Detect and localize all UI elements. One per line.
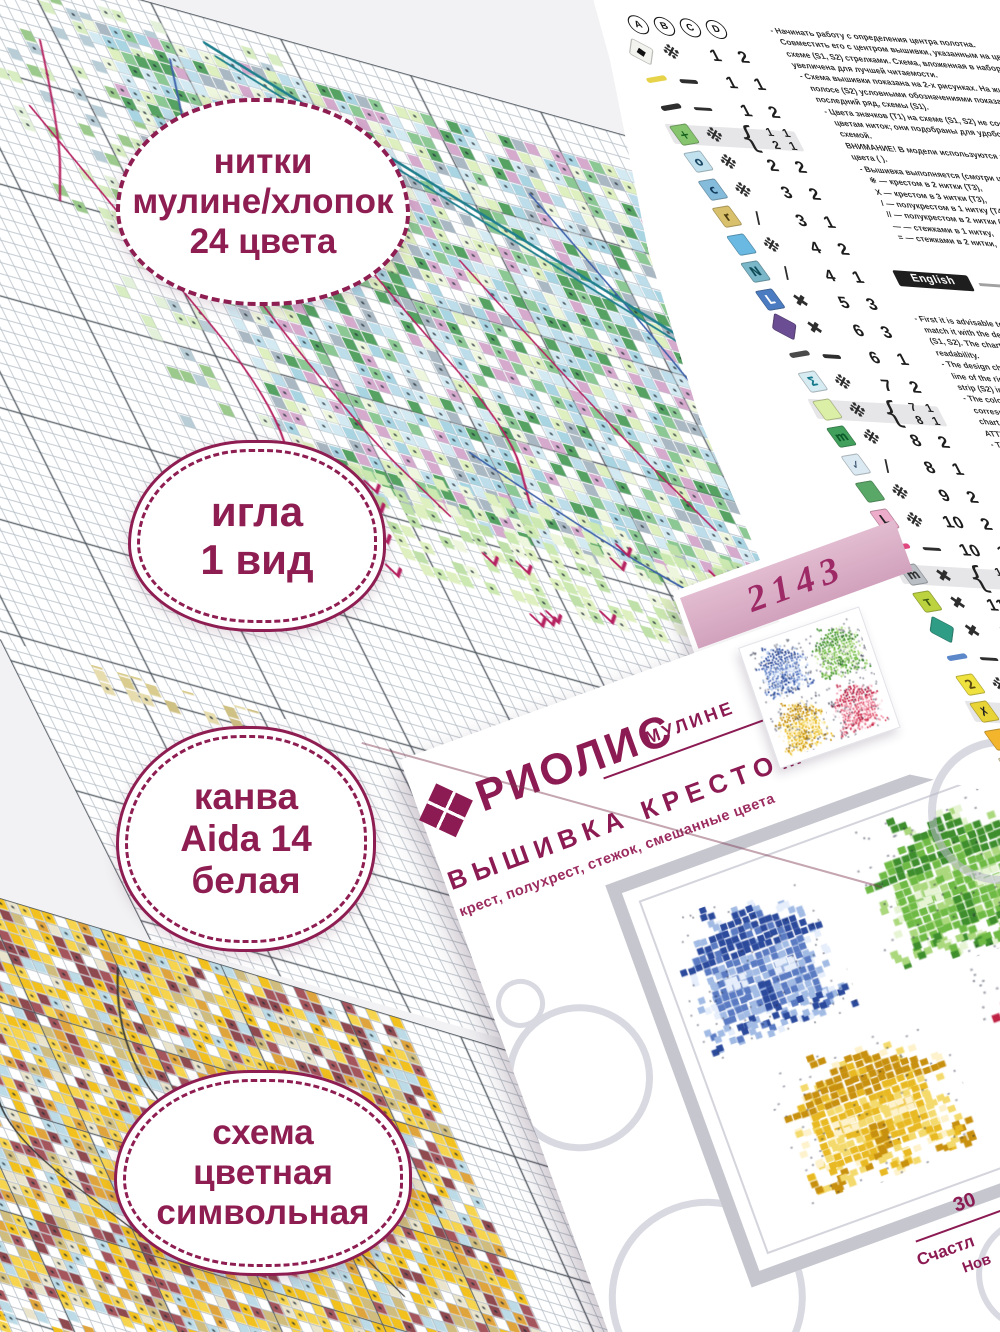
thread-number: 11	[974, 595, 1000, 616]
strand-count: 1	[811, 213, 839, 233]
badge-line: символьная	[156, 1193, 369, 1233]
legend-row: 11	[640, 69, 776, 97]
thread-number: 7	[860, 375, 898, 396]
color-chip-icon	[946, 653, 969, 661]
stitch-mark-icon: ※	[727, 180, 761, 201]
legend-row: ※42	[726, 234, 860, 262]
legend-row: ✓/81	[841, 454, 975, 482]
instruction-line: = — стежками в 2 нитки,	[870, 230, 1000, 275]
legend-row: o※22	[683, 151, 817, 179]
thread-number: 6	[831, 320, 869, 341]
stitch-mark-icon: /	[741, 208, 775, 229]
stitch-mark-icon: ✖	[784, 290, 818, 311]
stitch-mark-icon: ※	[827, 373, 861, 394]
stitch-mark-icon: ※	[841, 400, 875, 421]
thread-number: 10	[948, 541, 986, 562]
strand-count: 2	[926, 433, 954, 453]
color-chip-icon	[660, 103, 683, 111]
brand-logo-icon	[419, 783, 473, 837]
strand-count: 2	[797, 185, 825, 205]
badge-line: белая	[180, 860, 312, 902]
legend-row: ※92	[855, 481, 989, 509]
color-chip-icon	[788, 350, 811, 358]
badge-line: 24 цвета	[132, 222, 393, 262]
legend-row: 61	[783, 344, 919, 372]
strand-count: 2	[897, 378, 925, 398]
badge-line: цветная	[156, 1153, 369, 1193]
thread-number: 4	[803, 265, 841, 286]
stitch-mark-icon	[814, 346, 848, 367]
badge-text: канваAida 14белая	[180, 776, 312, 903]
stitch-mark-icon: /	[870, 455, 904, 476]
stitch-mark-icon: ※	[898, 510, 932, 531]
thread-number: 9	[917, 485, 955, 506]
strand-count: 2	[756, 103, 784, 123]
badge-chart: схемацветнаясимвольная	[114, 1070, 412, 1276]
stitch-mark-icon: ※	[884, 483, 918, 504]
strand-count: 1	[742, 75, 770, 95]
badge-text: схемацветнаясимвольная	[156, 1113, 369, 1233]
thread-label: МУЛИНЕ	[642, 697, 738, 749]
badge-line: 1 вид	[200, 536, 313, 584]
badge-line: нитки	[132, 142, 393, 182]
badge-canvas: канваAida 14белая	[116, 726, 376, 952]
blend-numbers: 7181	[907, 402, 943, 428]
stitch-mark-icon: ※	[712, 153, 746, 174]
badge-line: Aida 14	[180, 818, 312, 860]
badge-text: ниткимулине/хлопок24 цвета	[132, 142, 393, 262]
thread-number: 10	[932, 513, 970, 534]
thread-number: 3	[760, 183, 798, 204]
legend-row: ✖63	[769, 316, 903, 344]
strand-count: 2	[826, 240, 854, 260]
color-chip-icon: +	[668, 123, 700, 146]
brace: {	[877, 400, 909, 427]
thread-number: 8	[903, 458, 941, 479]
stitch-mark-icon: ✖	[941, 593, 975, 614]
badge-line: мулине/хлопок	[132, 182, 393, 222]
legend-header-b: B	[650, 16, 679, 36]
winter-house-art	[656, 868, 862, 1065]
thread-number: 3	[774, 210, 812, 231]
stitch-mark-icon: /	[770, 263, 804, 284]
legend-row: ◆※12	[626, 41, 760, 69]
thread-number: 1	[719, 101, 757, 122]
brace: {	[962, 565, 994, 592]
legend-header-d: D	[702, 19, 731, 39]
strand-count: 3	[868, 323, 896, 343]
stitch-mark-icon: ※	[755, 235, 789, 256]
stitch-mark-icon	[686, 98, 720, 119]
divider-line	[979, 283, 1000, 297]
badge-needle: игла1 вид	[128, 440, 386, 632]
color-chip-icon	[645, 75, 668, 83]
thread-number: 6	[848, 348, 886, 369]
sunny-house-art	[758, 1009, 986, 1210]
thread-number: 1	[705, 73, 743, 94]
product-collage: РИОЛИС МУЛИНЕ ВЫШИВКА КРЕСТОМ крест, пол…	[0, 0, 1000, 1332]
legend-row: +※{1121	[664, 123, 805, 151]
thread-number: 4	[789, 238, 827, 259]
legend-row: Σ※72	[798, 371, 932, 399]
strand-count: 1	[885, 350, 913, 370]
strand-count: 3	[854, 295, 882, 315]
color-chip-icon: ✗	[969, 700, 1000, 723]
legend-row: 12	[655, 96, 791, 124]
thread-number: 8	[889, 430, 927, 451]
color-chip-icon	[811, 398, 843, 421]
stitch-mark-icon: ✖	[798, 318, 832, 339]
strand-count: 1	[940, 460, 968, 480]
legend-header-c: C	[676, 18, 705, 38]
strand-count: 2	[783, 158, 811, 178]
legend-row: ※{7181	[807, 398, 948, 426]
legend-row: r/31	[712, 206, 846, 234]
strand-count: 2	[725, 48, 753, 68]
stitch-mark-icon: ※	[984, 675, 1000, 696]
legend-row: N/41	[740, 261, 874, 289]
legend-row: c※32	[698, 179, 832, 207]
badge-line: игла	[200, 488, 313, 536]
strand-count: 2	[969, 515, 997, 535]
badge-line: канва	[180, 776, 312, 818]
legend-header-a: A	[624, 15, 653, 35]
badge-text: игла1 вид	[200, 488, 313, 584]
strand-count: 2	[954, 488, 982, 508]
stitch-mark-icon: ※	[855, 428, 889, 449]
stitch-mark-icon	[915, 538, 949, 559]
thread-number: 12	[989, 623, 1000, 644]
english-label: English	[892, 270, 975, 291]
blend-numbers: 1121	[764, 127, 800, 153]
brace: {	[734, 125, 766, 152]
badge-line: схема	[156, 1113, 369, 1153]
stitch-mark-icon: ※	[655, 43, 689, 64]
legend-row: m※82	[826, 426, 960, 454]
thread-number: 2	[746, 155, 784, 176]
thread-number: 5	[817, 293, 855, 314]
stitch-mark-icon	[972, 648, 1000, 669]
thread-number: 1	[688, 45, 726, 66]
stitch-mark-icon: ※	[698, 125, 732, 146]
stitch-mark-icon: ✖	[927, 565, 961, 586]
strand-count: 1	[985, 543, 1000, 563]
strand-count: 1	[840, 268, 868, 288]
stitch-mark-icon	[671, 71, 705, 92]
stitch-mark-icon: ✖	[955, 620, 989, 641]
